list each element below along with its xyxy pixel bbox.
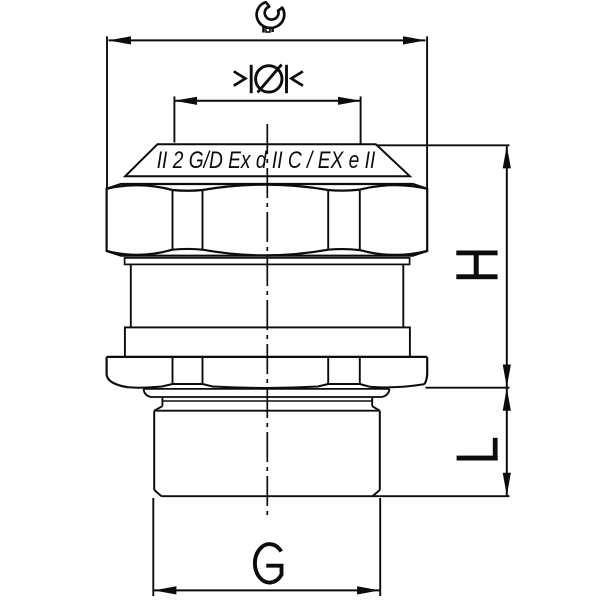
svg-text:II 2 G/D Ex d II C / EX e II: II 2 G/D Ex d II C / EX e II	[157, 146, 376, 174]
